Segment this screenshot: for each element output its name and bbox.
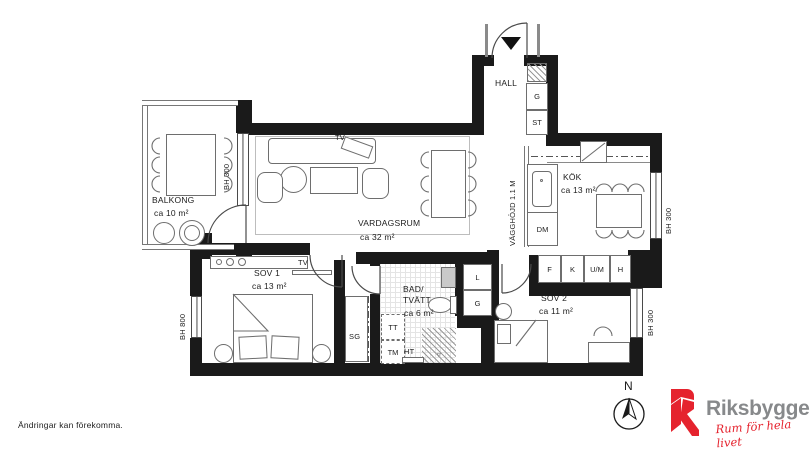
door-arc-bedroom1 bbox=[310, 255, 342, 287]
compass-needle-dark bbox=[622, 398, 629, 419]
chair-arc bbox=[468, 176, 476, 192]
chair-arc bbox=[152, 138, 160, 154]
room-label-kok: KÖK bbox=[563, 172, 582, 183]
room-label-bad1: BAD/ bbox=[403, 284, 424, 295]
chair-arc bbox=[596, 230, 612, 238]
tv-label-living: TV bbox=[335, 133, 345, 143]
room-area-sov1: ca 13 m² bbox=[252, 281, 287, 292]
floorplan-canvas: G ST DM F K U/M H TT TM ▿ L G bbox=[0, 0, 810, 455]
bed-fold-line bbox=[516, 320, 536, 346]
chair-arc bbox=[468, 152, 476, 168]
chair-arc bbox=[152, 176, 160, 192]
stove-diagonal bbox=[582, 143, 605, 161]
tv-label-sov1: TV bbox=[298, 258, 308, 268]
room-label-balkong: BALKONG bbox=[152, 195, 195, 206]
chair-arc bbox=[421, 176, 429, 192]
room-area-bad: ca 6 m² bbox=[404, 308, 434, 319]
chair-arc bbox=[612, 184, 628, 192]
chair-arc bbox=[596, 184, 612, 192]
chair-arc bbox=[612, 230, 628, 238]
sg-label: SG bbox=[349, 332, 360, 342]
compass-north-label: N bbox=[624, 379, 633, 393]
disclaimer-text: Ändringar kan förekomma. bbox=[18, 420, 123, 431]
chair-arc bbox=[628, 230, 644, 238]
room-label-sov2: SOV 2 bbox=[541, 293, 567, 304]
room-label-vardagsrum: VARDAGSRUM bbox=[358, 218, 420, 229]
room-area-balkong: ca 10 m² bbox=[154, 208, 189, 219]
bh300-sov2: BH 300 bbox=[646, 292, 656, 336]
bh800: BH 800 bbox=[178, 296, 188, 340]
chair-arc bbox=[421, 152, 429, 168]
compass: N bbox=[603, 376, 655, 440]
compass-needle-light bbox=[629, 398, 636, 419]
vagghojd-annotation: VÄGGHÖJD 1.1 M bbox=[508, 148, 518, 246]
room-label-sov1: SOV 1 bbox=[254, 268, 280, 279]
bh300-balkong: BH 300 bbox=[222, 146, 232, 190]
bh300-kok: BH 300 bbox=[664, 190, 674, 234]
chair-arc bbox=[421, 200, 429, 216]
riksbyggen-logo-mark bbox=[668, 388, 704, 438]
room-area-sov2: ca 11 m² bbox=[539, 306, 573, 317]
bed-fold-line bbox=[233, 294, 268, 331]
ht-label: HT bbox=[404, 347, 414, 357]
chair-arc bbox=[628, 184, 644, 192]
chair-arc bbox=[594, 327, 612, 336]
chair-arc bbox=[152, 157, 160, 173]
door-arc-balcony bbox=[208, 205, 246, 243]
door-arc-bathroom bbox=[352, 266, 380, 294]
door-arc-bedroom2 bbox=[502, 264, 531, 293]
room-label-bad2: TVÄTT bbox=[403, 295, 431, 306]
room-label-hall: HALL bbox=[495, 78, 517, 89]
room-area-kok: ca 13 m² bbox=[561, 185, 596, 196]
door-arc-entrance bbox=[492, 23, 527, 58]
room-area-vardagsrum: ca 32 m² bbox=[360, 232, 395, 243]
chair-arc bbox=[468, 200, 476, 216]
